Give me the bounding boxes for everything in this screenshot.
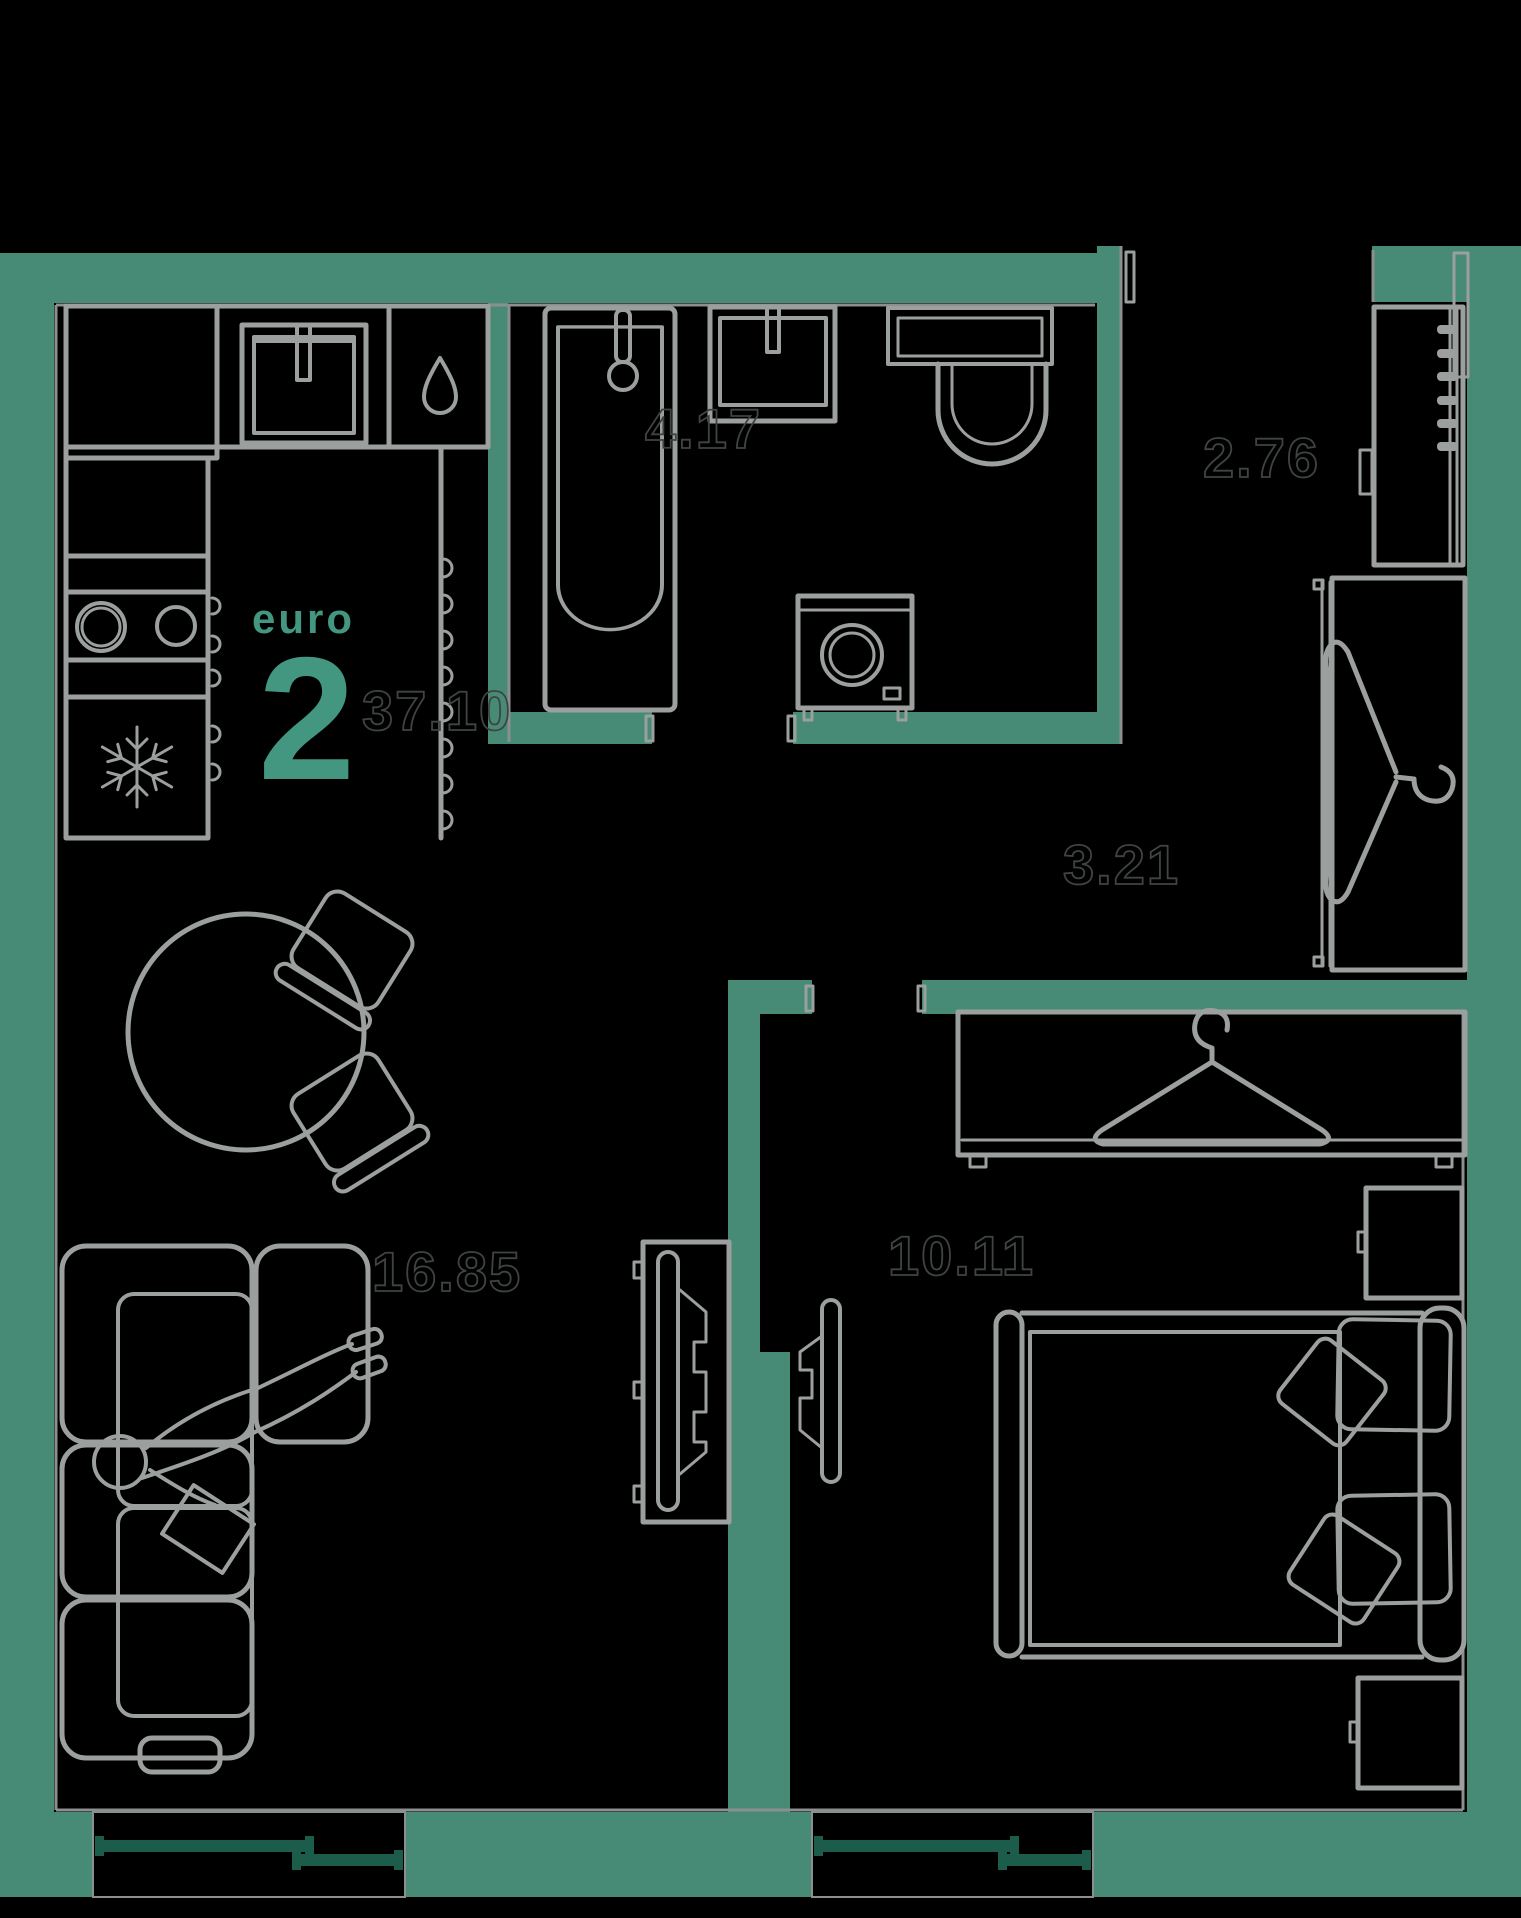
tv-living — [634, 1242, 729, 1522]
kitchen-counter — [66, 306, 488, 458]
nightstand-top — [1358, 1188, 1462, 1298]
tv-bedroom — [800, 1300, 840, 1482]
kitchen-tall-unit-edge — [441, 447, 452, 838]
hall-shoe-rack — [1360, 307, 1463, 565]
unit-rooms-count: 2 — [258, 622, 355, 817]
hall-closet — [1314, 578, 1465, 970]
toilet — [888, 308, 1052, 464]
floor-plan-drawing: euro 2 37.10 4.17 2.76 3.21 16.85 10.11 — [0, 0, 1521, 1918]
stove — [66, 592, 208, 660]
bed — [996, 1308, 1464, 1660]
unit-total-area: 37.10 — [362, 679, 512, 742]
chair — [272, 884, 421, 1033]
hanger-icon-closet — [1326, 642, 1454, 902]
walls — [0, 246, 1521, 1897]
snowflake-icon — [97, 727, 176, 807]
pillow — [1285, 1494, 1451, 1627]
kitchen-cabinets — [66, 458, 220, 780]
area-entry-hall: 2.76 — [1203, 426, 1320, 489]
pillow — [1274, 1319, 1451, 1449]
hanger-icon-wardrobe — [1095, 1011, 1328, 1144]
area-bedroom: 10.11 — [888, 1224, 1035, 1287]
water-drop-icon — [424, 358, 456, 413]
area-corridor: 3.21 — [1063, 833, 1180, 896]
nightstand-bottom — [1350, 1678, 1462, 1788]
floor-plan: euro 2 37.10 4.17 2.76 3.21 16.85 10.11 — [0, 0, 1521, 1918]
sofa — [62, 1246, 368, 1772]
dining-table — [128, 914, 364, 1150]
area-kitchen-living: 16.85 — [372, 1240, 522, 1303]
washing-machine — [798, 596, 912, 720]
area-bathroom: 4.17 — [645, 397, 762, 460]
kitchen-sink — [242, 325, 366, 443]
bathtub — [545, 308, 675, 710]
unit-labels: euro 2 37.10 — [252, 595, 512, 817]
room-area-labels: 4.17 2.76 3.21 16.85 10.11 — [372, 397, 1320, 1303]
